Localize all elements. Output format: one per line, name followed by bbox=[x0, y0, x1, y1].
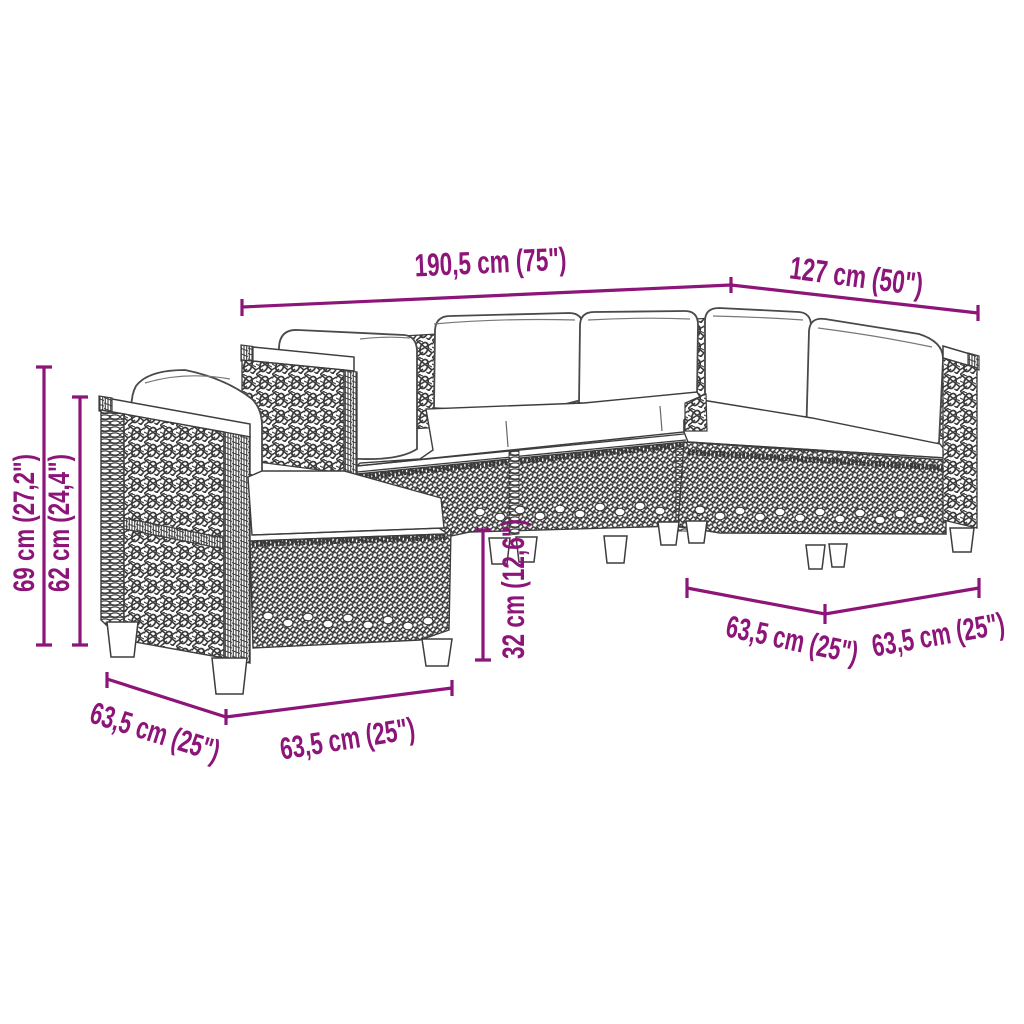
svg-text:190,5 cm (75"): 190,5 cm (75") bbox=[414, 241, 567, 284]
svg-text:62 cm (24,4"): 62 cm (24,4") bbox=[43, 454, 76, 592]
svg-text:69 cm (27,2"): 69 cm (27,2") bbox=[8, 454, 41, 592]
svg-text:32 cm (12,6"): 32 cm (12,6") bbox=[495, 519, 531, 659]
